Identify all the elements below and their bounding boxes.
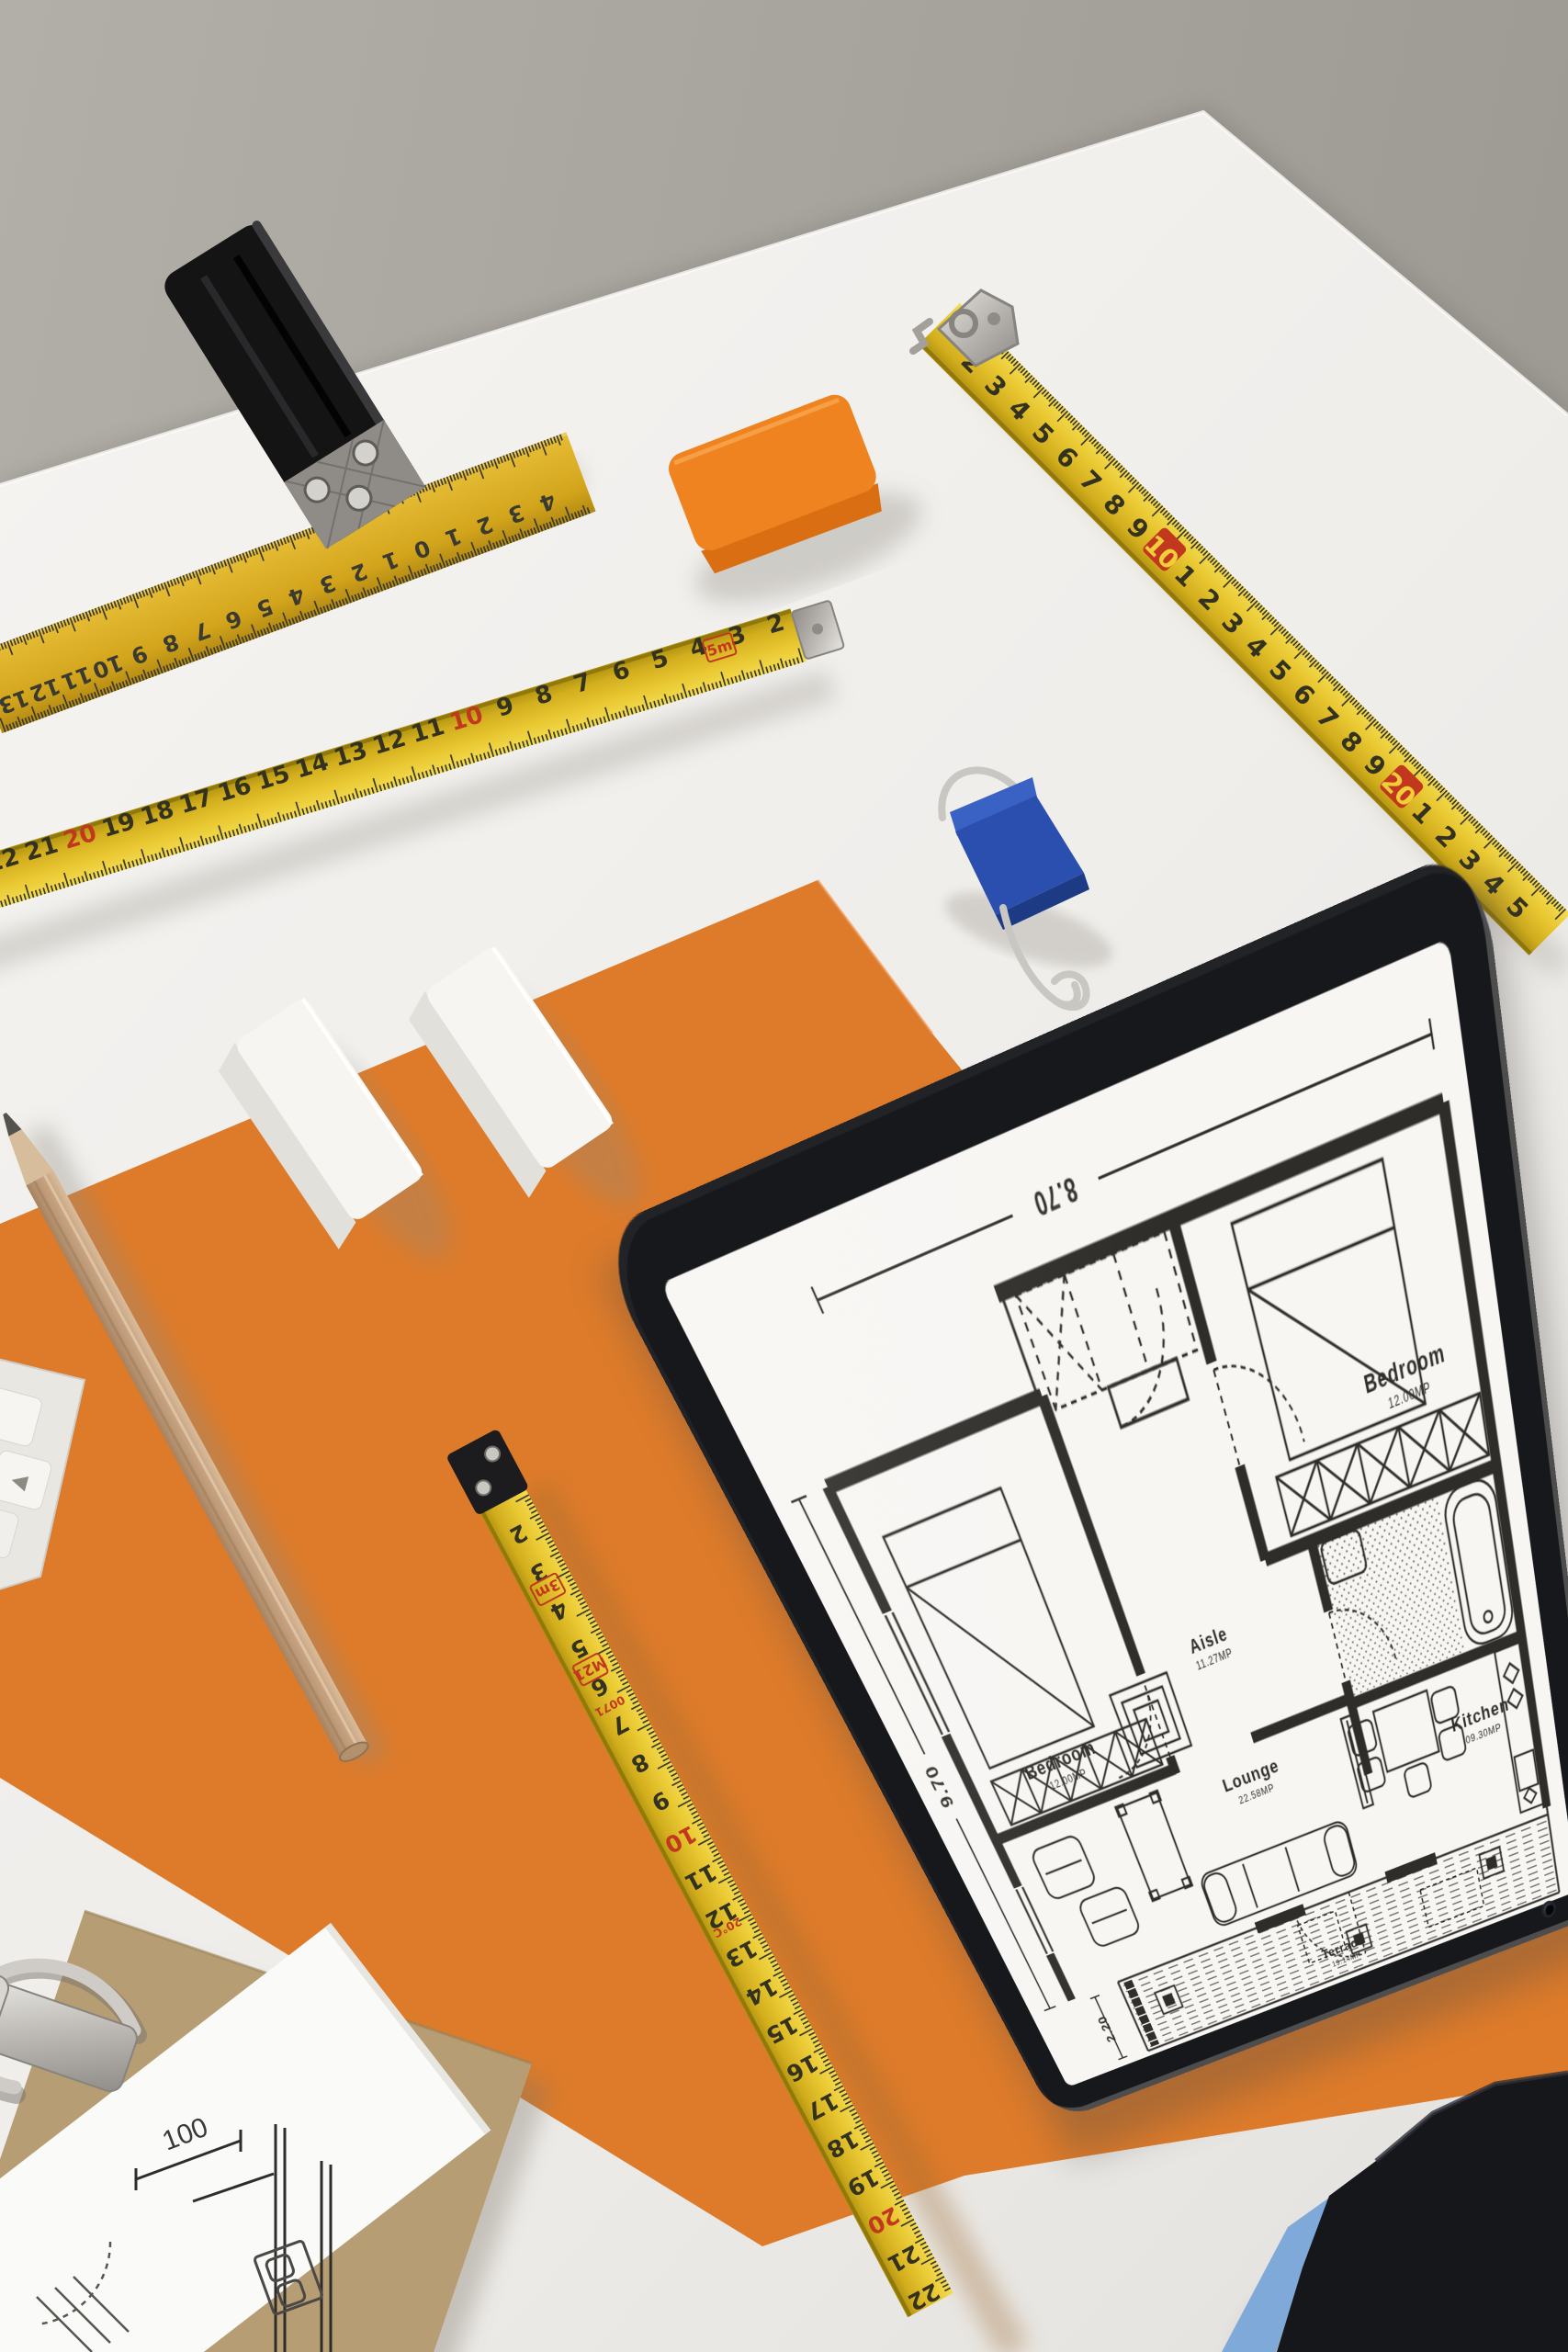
room-area: 11.27MP: [1195, 1646, 1235, 1673]
sofa: [1199, 1819, 1359, 1928]
washbasin: [1320, 1529, 1368, 1586]
plan-doors: [993, 1306, 1484, 2014]
room-labels: Bedroom 12.00MP Bedroom 12.00MP Aisle 11…: [928, 1334, 1539, 2042]
room-label: Lounge: [1220, 1755, 1281, 1797]
room-area: 19.14MP: [1331, 1950, 1361, 1968]
room-label: Bedroom: [1021, 1736, 1099, 1784]
front-camera: [1543, 1902, 1554, 1917]
room-label: Terrace: [1320, 1933, 1365, 1962]
coffee-table: [1117, 1792, 1190, 1899]
room-area: 22.58MP: [1237, 1781, 1276, 1806]
room-area: 12.00MP: [1387, 1379, 1432, 1412]
room-label: Kitchen: [1450, 1693, 1510, 1736]
dining-table: [1373, 1690, 1439, 1772]
desk-scene: ◀ 100: [0, 0, 1568, 2352]
room-area: 12.00MP: [1048, 1767, 1089, 1792]
room-label: Aisle: [1187, 1623, 1230, 1658]
dim-bottom-left: 2.20: [1095, 2014, 1119, 2044]
bathtub: [1441, 1474, 1515, 1649]
bathroom-floor: [1317, 1497, 1465, 1696]
armchair: [1077, 1885, 1142, 1949]
kitchen-counter: [1495, 1642, 1543, 1813]
dim-left: 9.70: [920, 1762, 957, 1810]
room-label: Bedroom: [1361, 1337, 1447, 1399]
entry-closet-dashed: [1016, 1231, 1209, 1449]
dim-top: 8.70: [1029, 1169, 1082, 1223]
armchair: [1030, 1834, 1097, 1901]
room-area: 09.30MP: [1465, 1722, 1503, 1747]
